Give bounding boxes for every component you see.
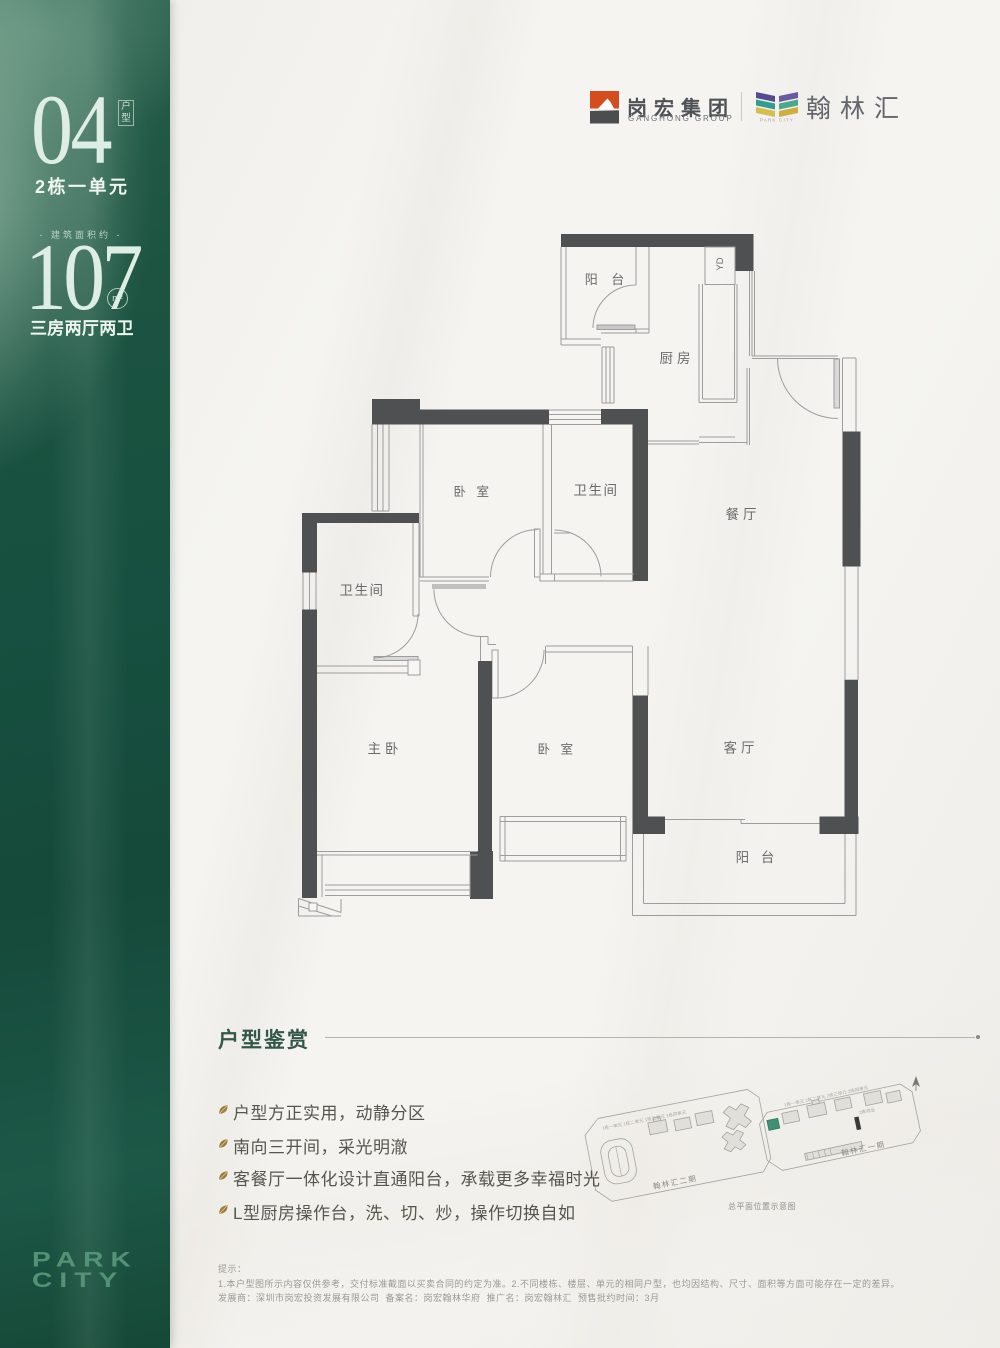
svg-text:客厅: 客厅 xyxy=(724,740,759,756)
svg-text:翰林汇一期: 翰林汇一期 xyxy=(840,1139,886,1158)
svg-text:阳 台: 阳 台 xyxy=(736,850,779,865)
svg-text:阳 台: 阳 台 xyxy=(585,272,630,287)
svg-text:2栋商业: 2栋商业 xyxy=(859,1106,877,1116)
svg-text:主卧: 主卧 xyxy=(368,742,403,757)
svg-text:总平面位置示意图: 总平面位置示意图 xyxy=(728,1201,796,1211)
svg-text:卫生间: 卫生间 xyxy=(574,483,619,498)
svg-text:餐厅: 餐厅 xyxy=(726,507,761,522)
svg-text:厨房: 厨房 xyxy=(660,351,695,366)
svg-text:YD: YD xyxy=(715,257,726,270)
svg-text:1栋一单元 2栋二单元 2栋三单元 2栋四单元: 1栋一单元 2栋二单元 2栋三单元 2栋四单元 xyxy=(783,1084,869,1109)
svg-text:卫生间: 卫生间 xyxy=(340,583,385,598)
svg-text:翰林汇二期: 翰林汇二期 xyxy=(652,1173,698,1191)
svg-text:卧 室: 卧 室 xyxy=(538,742,577,757)
svg-text:卧 室: 卧 室 xyxy=(454,484,493,499)
